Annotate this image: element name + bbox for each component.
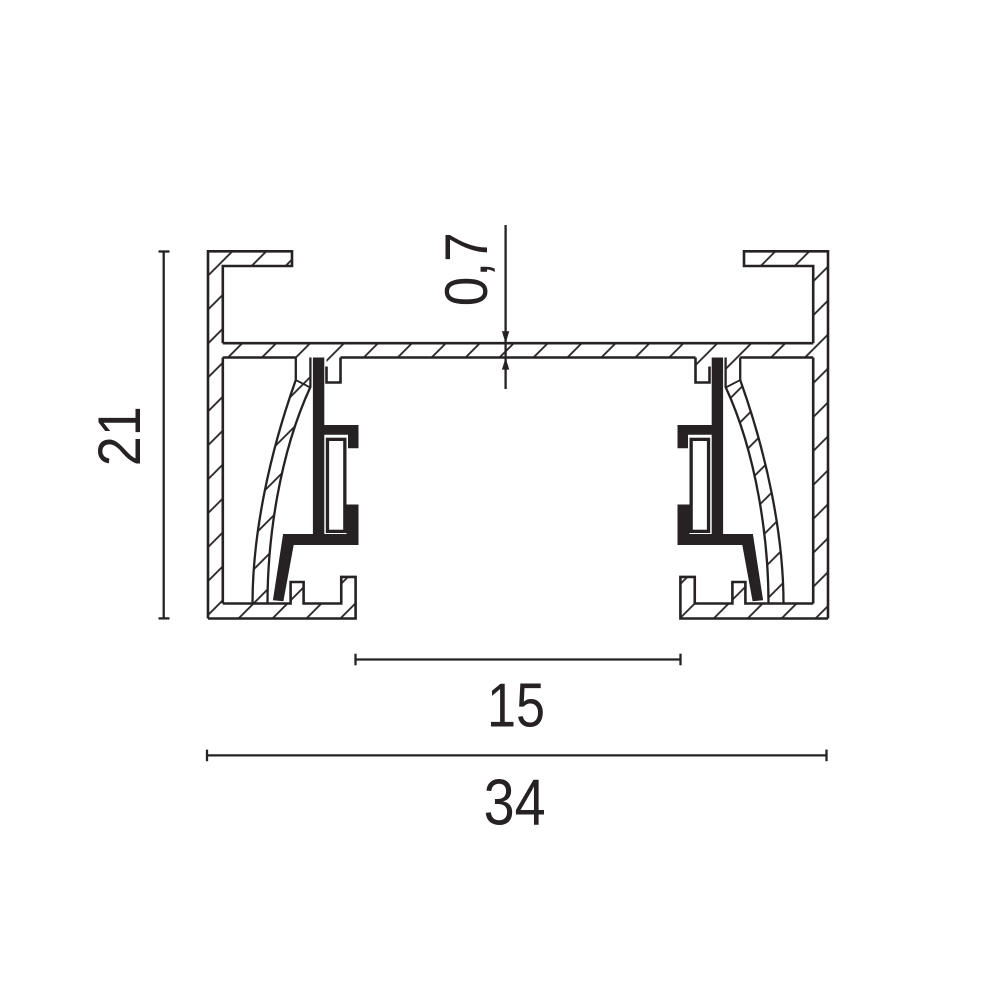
svg-text:21: 21 bbox=[86, 406, 153, 466]
svg-text:34: 34 bbox=[484, 767, 546, 839]
svg-text:15: 15 bbox=[487, 672, 545, 741]
svg-text:0,7: 0,7 bbox=[433, 232, 500, 306]
